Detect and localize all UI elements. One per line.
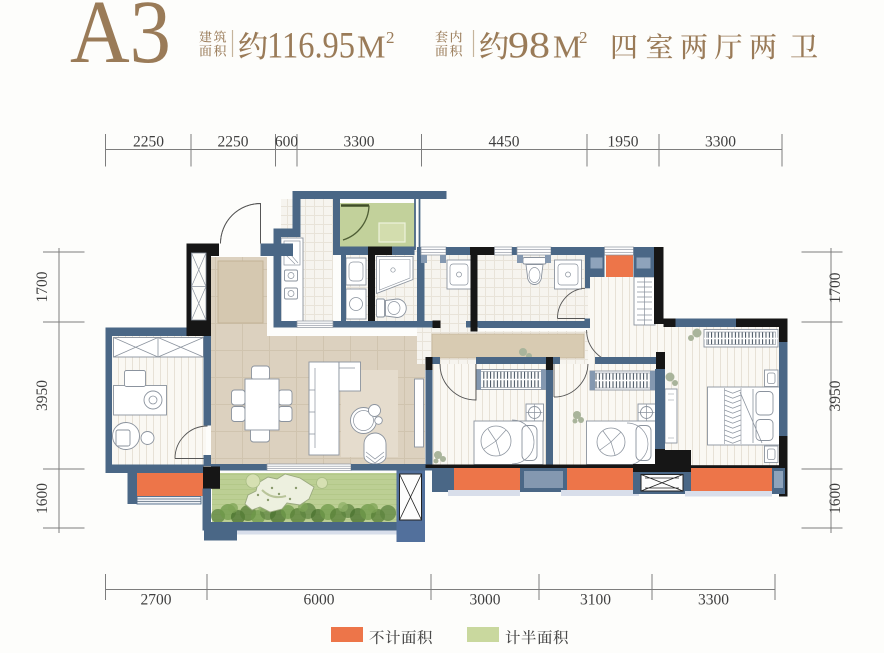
svg-text:1950: 1950 <box>608 134 639 151</box>
svg-text:3100: 3100 <box>580 592 611 609</box>
svg-text:2: 2 <box>579 28 588 47</box>
svg-text:600: 600 <box>275 134 299 151</box>
svg-text:M: M <box>553 29 581 65</box>
svg-text:98: 98 <box>508 26 550 67</box>
svg-text:2700: 2700 <box>141 592 172 609</box>
svg-text:3300: 3300 <box>698 592 729 609</box>
svg-text:6000: 6000 <box>304 592 335 609</box>
svg-text:1700: 1700 <box>34 271 51 302</box>
svg-text:3300: 3300 <box>705 134 736 151</box>
svg-text:M: M <box>357 29 385 65</box>
svg-text:2250: 2250 <box>218 134 249 151</box>
svg-text:3950: 3950 <box>34 380 51 411</box>
svg-text:3000: 3000 <box>470 592 501 609</box>
svg-text:2250: 2250 <box>133 134 164 151</box>
svg-text:116.95: 116.95 <box>267 26 355 67</box>
svg-text:3300: 3300 <box>344 134 375 151</box>
svg-text:1600: 1600 <box>34 483 51 514</box>
svg-text:4450: 4450 <box>489 134 520 151</box>
svg-text:1600: 1600 <box>827 483 844 514</box>
svg-text:A3: A3 <box>70 0 171 82</box>
svg-text:2: 2 <box>386 28 395 47</box>
svg-text:3950: 3950 <box>827 380 844 411</box>
svg-text:1700: 1700 <box>827 272 844 303</box>
